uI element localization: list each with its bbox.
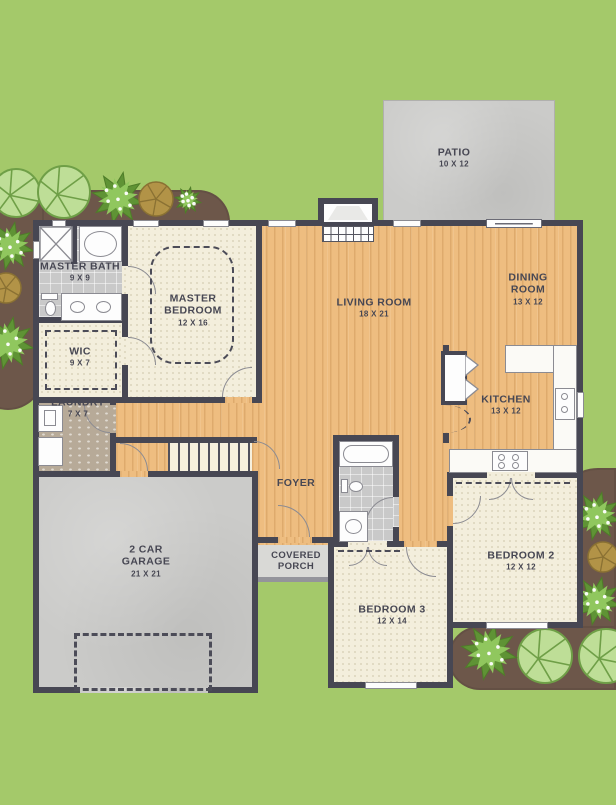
room-dims: 13 X 12 — [498, 297, 558, 306]
room-dims: 21 X 21 — [115, 569, 177, 578]
room-dims: 7 X 7 — [38, 410, 118, 419]
room-label-garage: 2 CAR GARAGE 21 X 21 — [115, 543, 177, 578]
room-label-dining-room: DINING ROOM 13 X 12 — [498, 271, 558, 306]
room-label-wic: WIC 9 X 7 — [40, 346, 120, 369]
wall-segment — [577, 220, 583, 478]
sink-icon — [345, 519, 362, 534]
sliding-patio-door-icon — [486, 219, 542, 228]
room-label-master-bath: MASTER BATH 9 X 9 — [20, 261, 140, 284]
room-label-living-room: LIVING ROOM 18 X 21 — [309, 297, 439, 320]
room-label-patio: PATIO 10 X 12 — [409, 147, 499, 170]
room-label-laundry: LAUNDRY 7 X 7 — [38, 397, 118, 420]
room-dims: 9 X 9 — [20, 274, 140, 283]
garage-door-outline — [74, 633, 212, 691]
window-icon — [365, 682, 417, 689]
room-name: FOYER — [256, 477, 336, 489]
room-name: BEDROOM 2 — [466, 550, 576, 562]
room-name: COVERED PORCH — [261, 550, 331, 572]
window-icon — [133, 220, 159, 227]
room-dims: 13 X 12 — [461, 407, 551, 416]
room-name: KITCHEN — [461, 394, 551, 406]
room-label-master-bedroom: MASTER BEDROOM 12 X 16 — [154, 292, 232, 327]
kitchen-sink-icon — [555, 388, 575, 420]
room-name: 2 CAR GARAGE — [115, 543, 177, 568]
sink-icon — [70, 301, 85, 313]
room-label-kitchen: KITCHEN 13 X 12 — [461, 394, 551, 417]
room-dims: 10 X 12 — [409, 160, 499, 169]
room-name: LAUNDRY — [38, 397, 118, 409]
toilet-icon — [41, 293, 58, 300]
bathtub-basin — [343, 445, 389, 463]
shower-icon — [39, 226, 73, 262]
room-name: WIC — [40, 346, 120, 358]
closet-rod-line — [338, 550, 400, 552]
closet-rod-line — [456, 482, 570, 484]
room-dims: 18 X 21 — [309, 310, 439, 319]
room-name: PATIO — [409, 147, 499, 159]
toilet-bowl — [349, 481, 363, 492]
window-icon — [577, 392, 584, 418]
door-opening — [225, 397, 252, 403]
toilet-bowl — [45, 301, 56, 316]
room-dims: 12 X 14 — [337, 617, 447, 626]
window-icon — [393, 220, 421, 227]
wall-segment — [443, 433, 449, 443]
room-label-bedroom2: BEDROOM 2 12 X 12 — [466, 550, 576, 573]
stairs-icon — [168, 443, 252, 471]
room-label-covered-porch: COVERED PORCH — [261, 550, 331, 572]
front-door-opening — [278, 537, 312, 543]
room-dims: 12 X 16 — [154, 318, 232, 327]
floor-plan-canvas: MASTER BATH 9 X 9 MASTER BEDROOM 12 X 16… — [0, 0, 616, 805]
bathtub-basin — [84, 231, 117, 257]
door-opening — [120, 471, 148, 477]
window-icon — [203, 220, 229, 227]
window-icon — [486, 622, 548, 629]
dryer-icon — [38, 437, 63, 466]
room-dims: 9 X 7 — [40, 359, 120, 368]
room-name: BEDROOM 3 — [337, 604, 447, 616]
toilet-icon — [341, 479, 348, 493]
room-label-bedroom3: BEDROOM 3 12 X 14 — [337, 604, 447, 627]
door-opening — [393, 497, 399, 527]
room-label-foyer: FOYER — [256, 477, 336, 489]
room-dims: 12 X 12 — [466, 563, 576, 572]
room-name: MASTER BATH — [20, 261, 140, 273]
room-name: DINING ROOM — [498, 271, 558, 296]
fireplace-hearth — [322, 226, 374, 242]
stove-icon — [492, 451, 528, 471]
room-name: LIVING ROOM — [309, 297, 439, 309]
window-icon — [268, 220, 296, 227]
sink-icon — [96, 301, 111, 313]
landscape-bed-bottom — [448, 626, 616, 690]
room-name: MASTER BEDROOM — [154, 292, 232, 317]
